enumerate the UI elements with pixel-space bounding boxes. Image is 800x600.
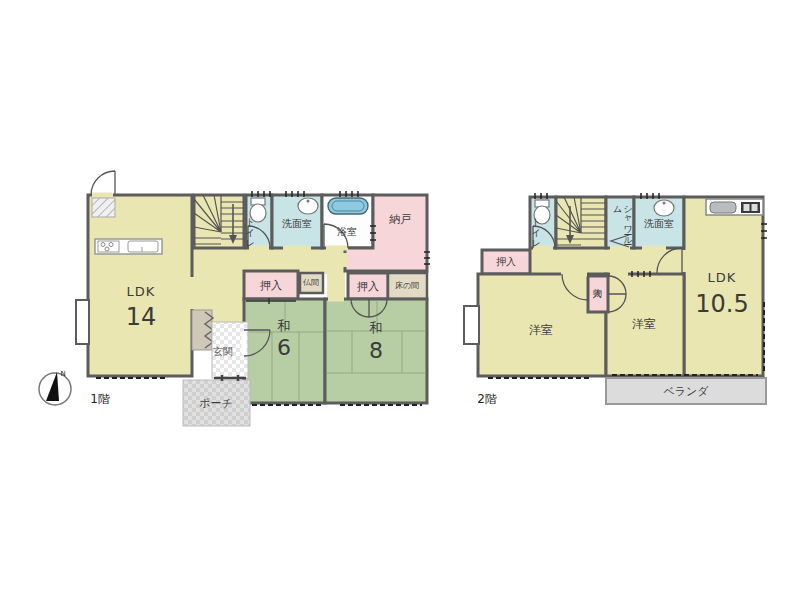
- closet1-right-label: 押入: [357, 281, 379, 292]
- floor2-label: 2階: [477, 393, 497, 405]
- veranda-label: ベランダ: [663, 386, 708, 397]
- western-left-label: 洋室: [529, 324, 553, 336]
- toilet1-label: トイレ: [245, 212, 255, 243]
- compass-icon: [39, 372, 71, 405]
- sink-icon: [128, 241, 158, 252]
- tatami8-label: 和: [370, 321, 383, 334]
- butsuma-label: 仏間: [303, 279, 319, 287]
- ldk1-size: 14: [126, 305, 157, 329]
- basin-icon-1f: [298, 198, 318, 214]
- sink-icon-2f: [710, 202, 736, 213]
- entrance-label: 玄関: [213, 347, 233, 357]
- tatami8-size: 8: [369, 340, 383, 362]
- kitchen-counter-1f: [95, 239, 162, 254]
- washroom2-label: 洗面室: [644, 219, 674, 229]
- closet2-label: 押入: [496, 257, 516, 267]
- porch-label: ポーチ: [199, 398, 233, 409]
- tokonoma-label: 床の間: [395, 282, 419, 290]
- closet1-left-label: 押入: [260, 280, 282, 291]
- toilet2-label: トイレ: [531, 212, 541, 243]
- floor1-label: 1階: [90, 393, 110, 405]
- ldk1-label: LDK: [127, 285, 156, 298]
- storeroom-label: 納戸: [389, 214, 411, 225]
- floor1-plan: [39, 171, 430, 426]
- washroom1-label: 洗面室: [282, 219, 312, 229]
- bathtub-icon: [328, 198, 368, 214]
- bay-window-1f: [76, 300, 89, 344]
- floorplan-canvas: LDK 14 トイレ 洗面室 浴室 納戸 押入 仏間 押入 床の間 和 6 和 …: [0, 0, 800, 600]
- room-ldk2: [684, 197, 763, 376]
- ldk2-label: LDK: [708, 271, 737, 284]
- bath-label: 浴室: [337, 227, 357, 237]
- compass-north-label: N: [60, 371, 65, 378]
- shower-room-label: シャワールーム: [605, 199, 633, 247]
- shoe-cabinet: [192, 310, 212, 350]
- fridge-space: [92, 198, 115, 217]
- ldk2-size: 10.5: [695, 292, 748, 316]
- western-right-label: 洋室: [632, 318, 656, 330]
- kitchen-counter-2f: [706, 199, 763, 215]
- floorplan-drawing: [0, 0, 800, 600]
- tatami6-label: 和: [278, 319, 291, 332]
- tatami6-size: 6: [277, 337, 291, 359]
- room-storage2: [588, 276, 608, 312]
- bay-window-2f: [464, 306, 479, 344]
- basin-icon-2f: [654, 200, 674, 216]
